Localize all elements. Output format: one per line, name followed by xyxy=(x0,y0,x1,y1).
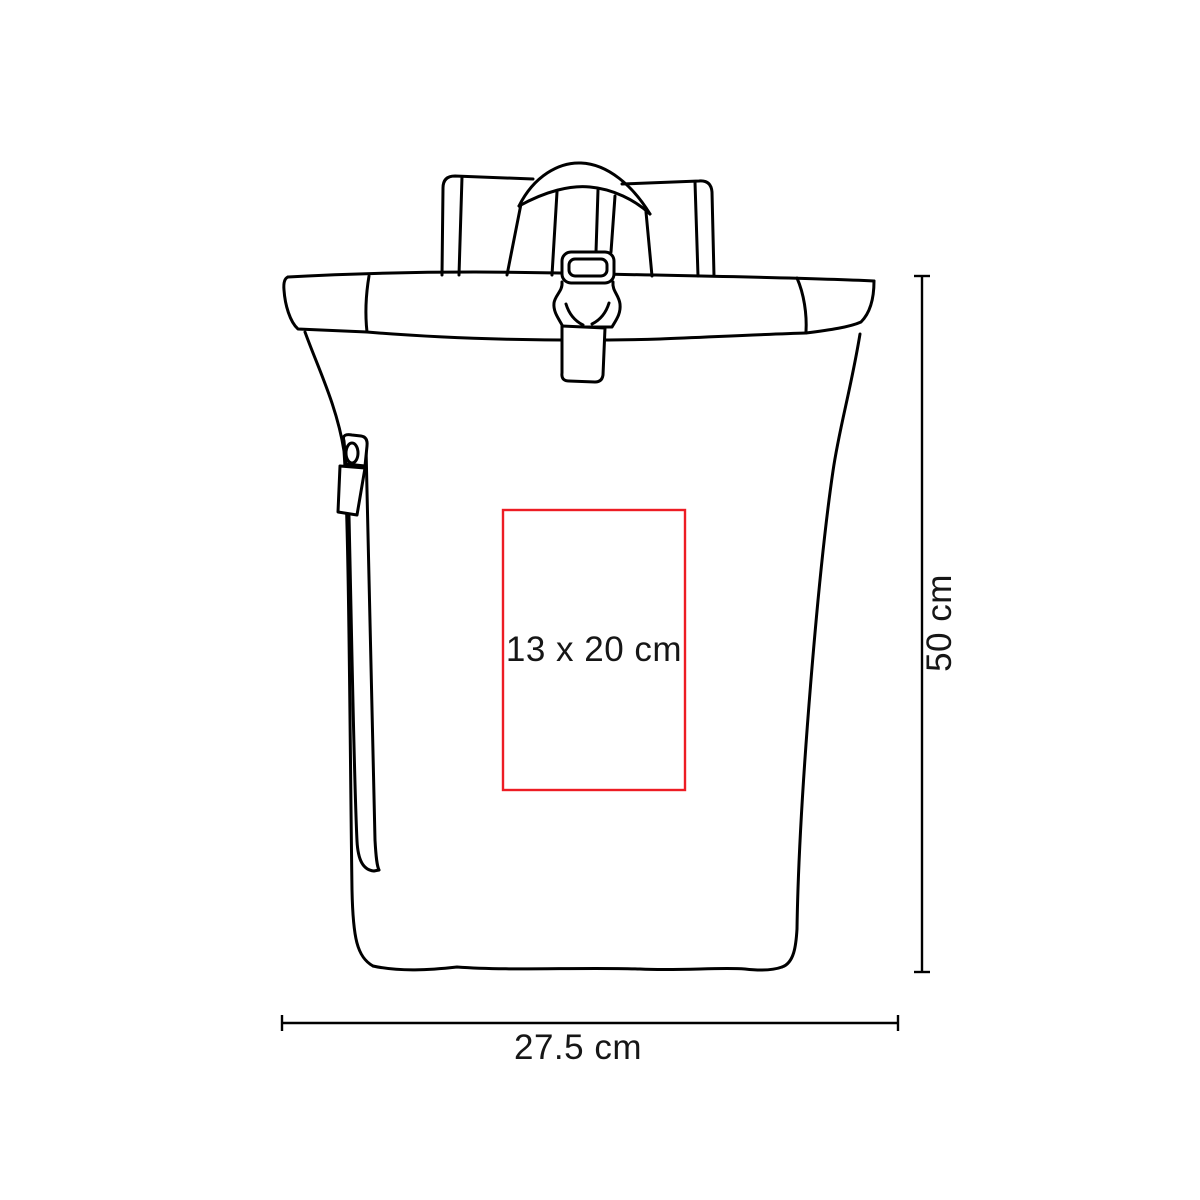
width-dimension-label: 27.5 cm xyxy=(428,1028,728,1068)
zipper-slider xyxy=(338,466,365,515)
buckle-strap-keeper xyxy=(562,326,605,382)
buckle xyxy=(554,252,620,382)
left-shoulder-strap xyxy=(442,176,533,275)
print-area-label: 13 x 20 cm xyxy=(503,510,685,790)
buckle-body xyxy=(554,282,620,327)
zipper xyxy=(338,435,379,871)
diagram-canvas: 13 x 20 cm 50 cm 27.5 cm xyxy=(0,0,1200,1200)
height-dimension-label: 50 cm xyxy=(918,543,962,703)
